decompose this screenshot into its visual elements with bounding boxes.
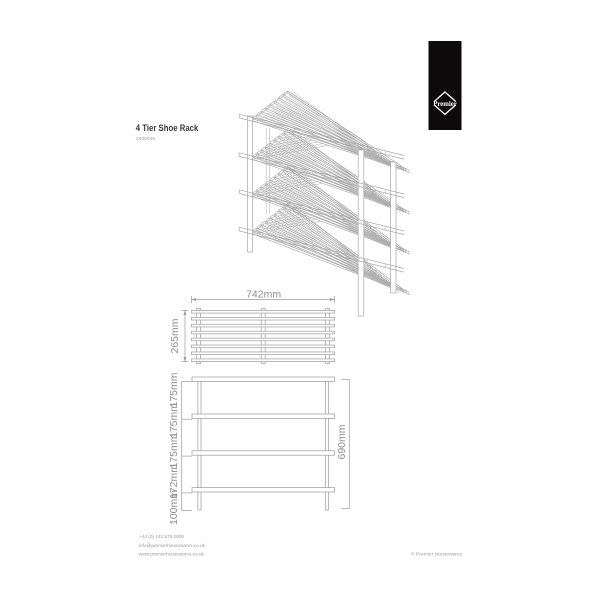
svg-text:265mm: 265mm [169, 318, 181, 353]
svg-text:100mm: 100mm [168, 490, 180, 525]
svg-text:info@premierhousewares.co.uk: info@premierhousewares.co.uk [139, 543, 206, 548]
svg-text:Premier: Premier [433, 99, 457, 108]
svg-text:175mm: 175mm [168, 372, 180, 407]
svg-text:www.premierhousewares.co.uk: www.premierhousewares.co.uk [139, 552, 205, 557]
svg-text:+44 (0) 141 579 2000: +44 (0) 141 579 2000 [139, 534, 184, 539]
svg-text:742mm: 742mm [246, 289, 281, 301]
svg-text:175mm: 175mm [168, 433, 180, 468]
svg-text:© Premier Housewares: © Premier Housewares [411, 551, 463, 558]
svg-text:175mm: 175mm [168, 403, 180, 438]
svg-text:4 Tier Shoe Rack: 4 Tier Shoe Rack [136, 123, 199, 134]
svg-text:690mm: 690mm [336, 424, 348, 459]
svg-text:2400046: 2400046 [136, 136, 155, 142]
